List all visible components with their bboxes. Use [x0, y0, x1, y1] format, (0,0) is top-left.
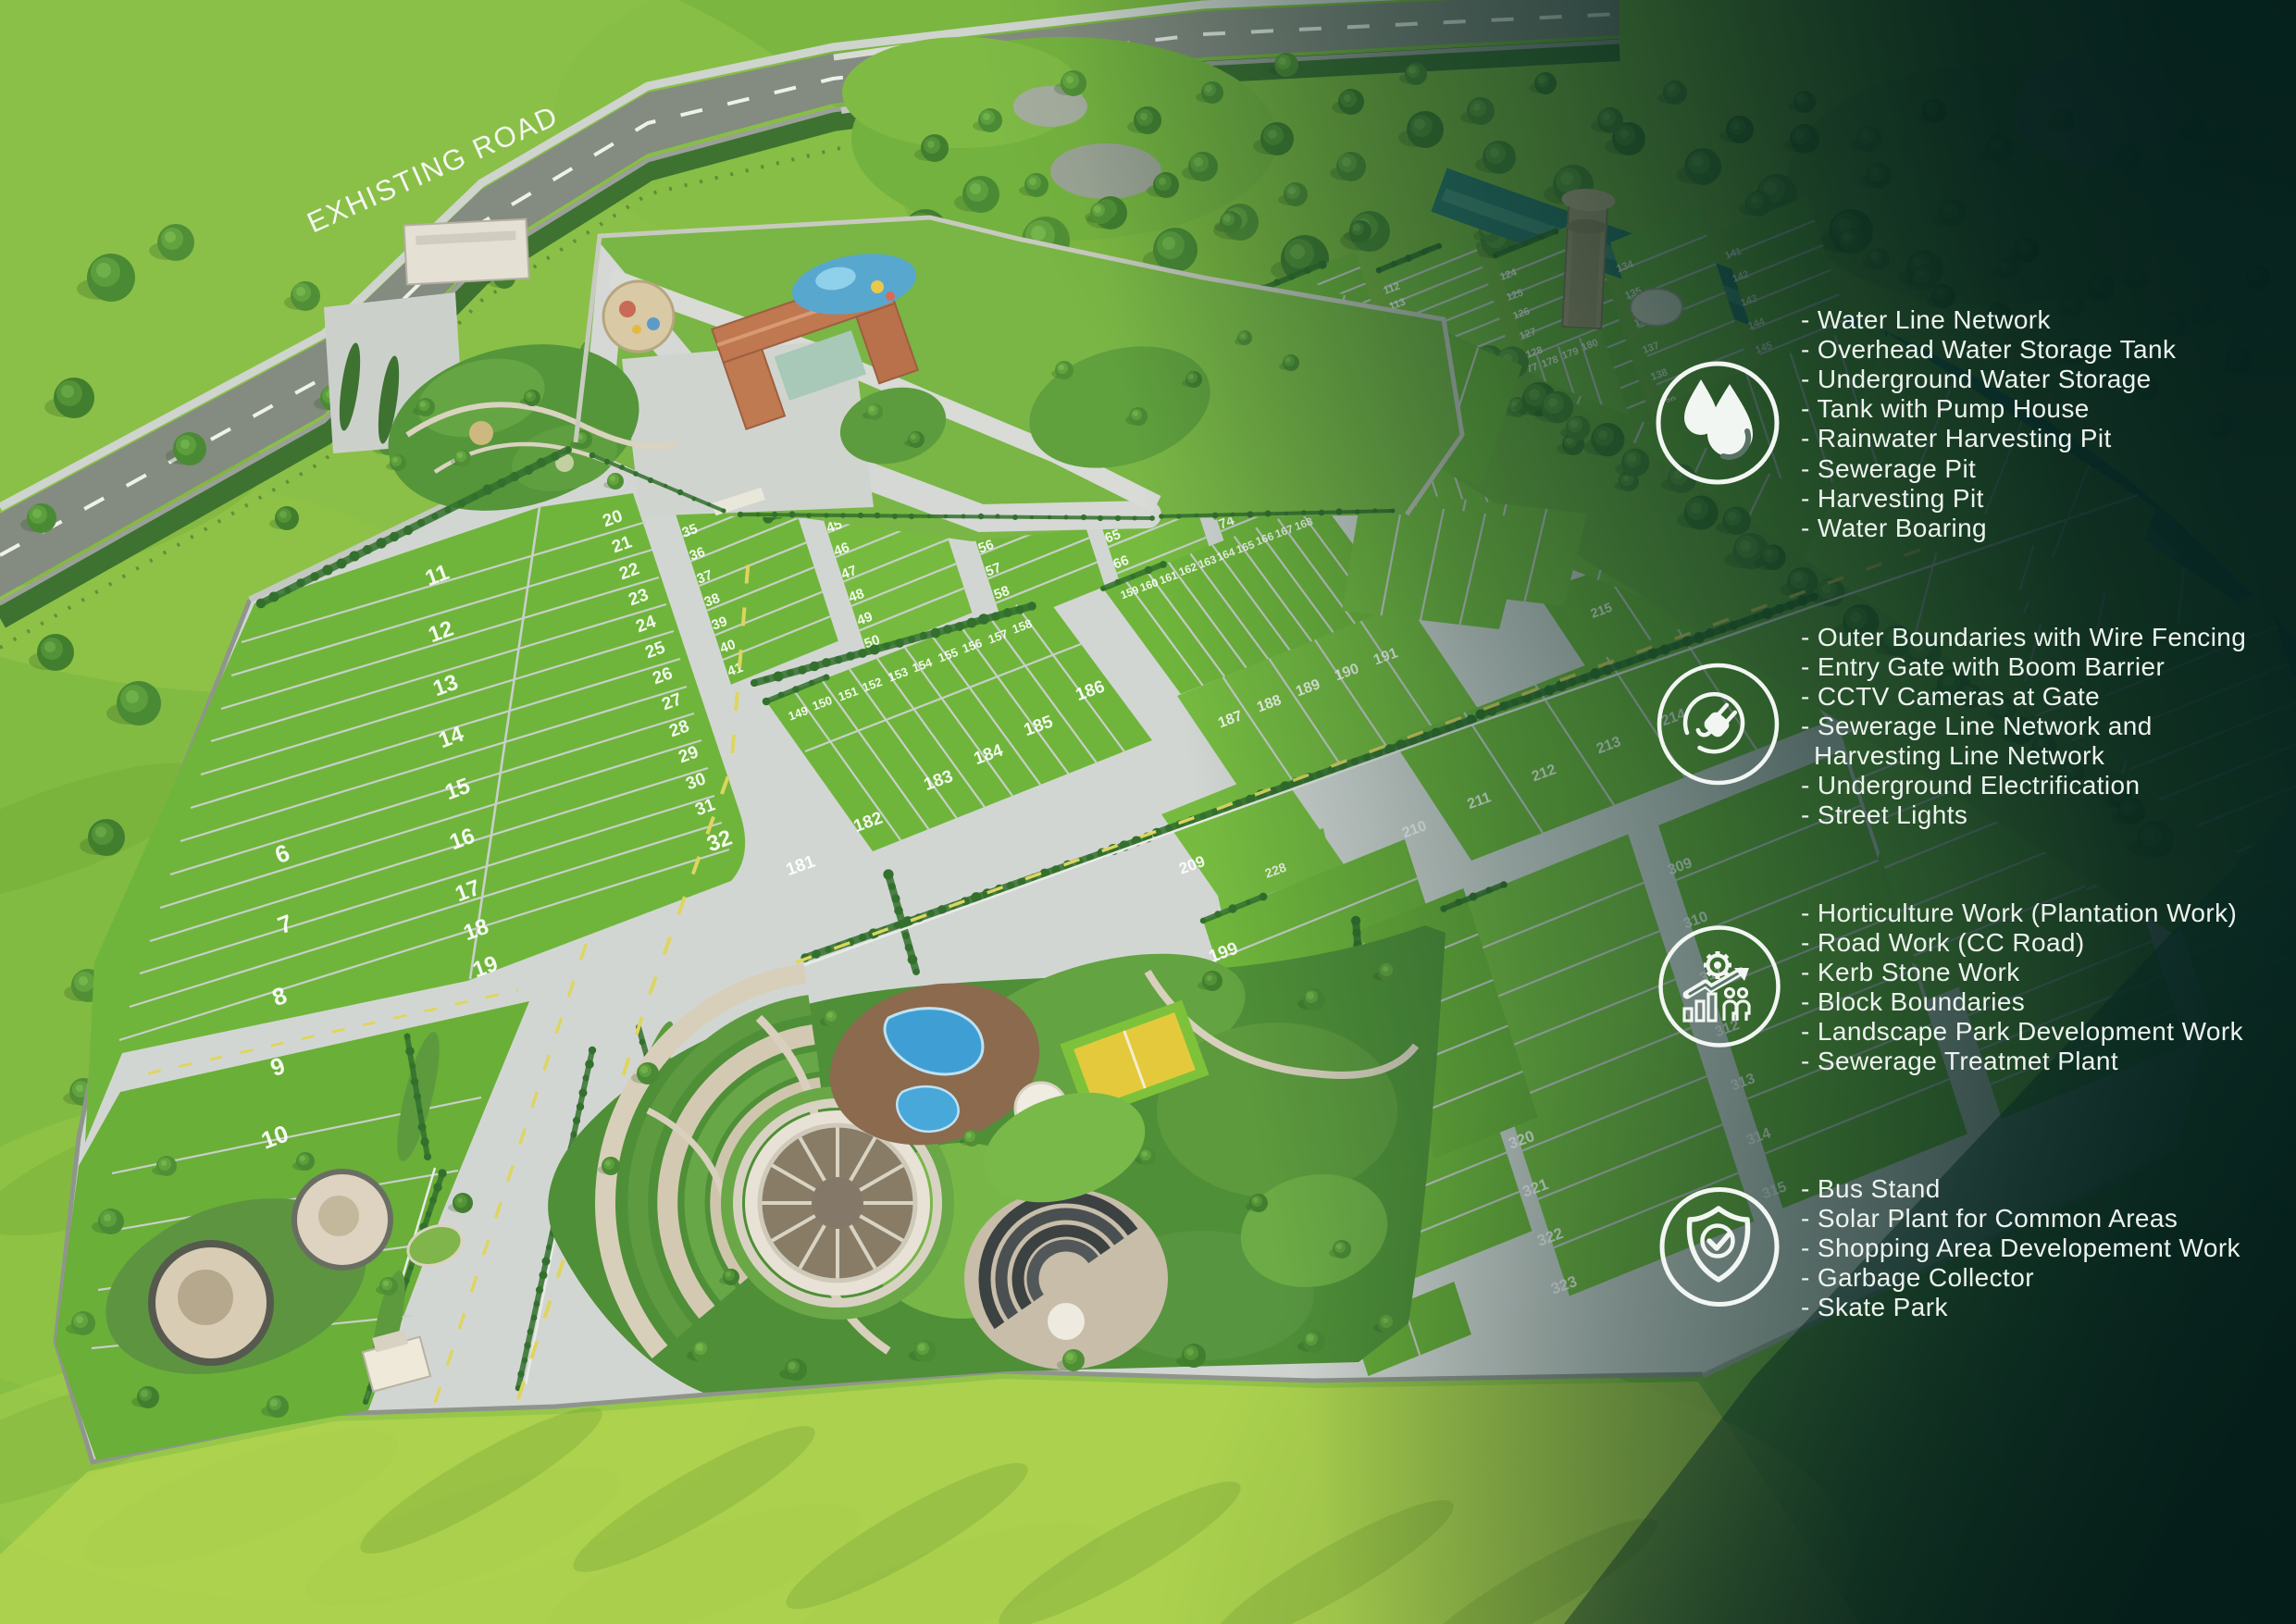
svg-text:- Solar Plant for Common Areas: - Solar Plant for Common Areas	[1801, 1204, 2178, 1233]
svg-text:- Water Boaring: - Water Boaring	[1801, 514, 1987, 542]
svg-text:- CCTV Cameras at Gate: - CCTV Cameras at Gate	[1801, 682, 2100, 711]
svg-text:- Sewerage Pit: - Sewerage Pit	[1801, 454, 1976, 483]
svg-text:Harvesting Line Network: Harvesting Line Network	[1814, 741, 2105, 770]
svg-text:- Garbage Collector: - Garbage Collector	[1801, 1263, 2034, 1292]
svg-text:- Kerb Stone Work: - Kerb Stone Work	[1801, 958, 2020, 986]
svg-text:- Skate Park: - Skate Park	[1801, 1293, 1948, 1321]
svg-text:- Sewerage Treatmet Plant: - Sewerage Treatmet Plant	[1801, 1047, 2118, 1075]
svg-text:- Road Work (CC Road): - Road Work (CC Road)	[1801, 928, 2085, 957]
svg-text:- Harvesting Pit: - Harvesting Pit	[1801, 484, 1984, 513]
svg-text:- Tank with Pump House: - Tank with Pump House	[1801, 394, 2090, 423]
svg-text:- Street Lights: - Street Lights	[1801, 800, 1967, 829]
svg-text:- Overhead Water Storage Tank: - Overhead Water Storage Tank	[1801, 335, 2177, 364]
svg-text:- Shopping Area Developement W: - Shopping Area Developement Work	[1801, 1233, 2241, 1262]
svg-text:- Outer Boundaries with Wire F: - Outer Boundaries with Wire Fencing	[1801, 623, 2246, 651]
svg-text:- Horticulture Work (Plantatio: - Horticulture Work (Plantation Work)	[1801, 899, 2237, 927]
svg-text:- Sewerage Line Network and: - Sewerage Line Network and	[1801, 712, 2153, 740]
svg-text:- Entry Gate with Boom Barrier: - Entry Gate with Boom Barrier	[1801, 652, 2165, 681]
svg-text:- Landscape Park Development W: - Landscape Park Development Work	[1801, 1017, 2244, 1046]
svg-text:- Bus Stand: - Bus Stand	[1801, 1174, 1941, 1203]
svg-text:- Water Line Network: - Water Line Network	[1801, 305, 2052, 334]
svg-text:- Underground Water Storage: - Underground Water Storage	[1801, 365, 2152, 393]
svg-text:- Underground Electrification: - Underground Electrification	[1801, 771, 2140, 800]
svg-text:- Block Boundaries: - Block Boundaries	[1801, 987, 2025, 1016]
svg-text:- Rainwater Harvesting Pit: - Rainwater Harvesting Pit	[1801, 424, 2112, 452]
